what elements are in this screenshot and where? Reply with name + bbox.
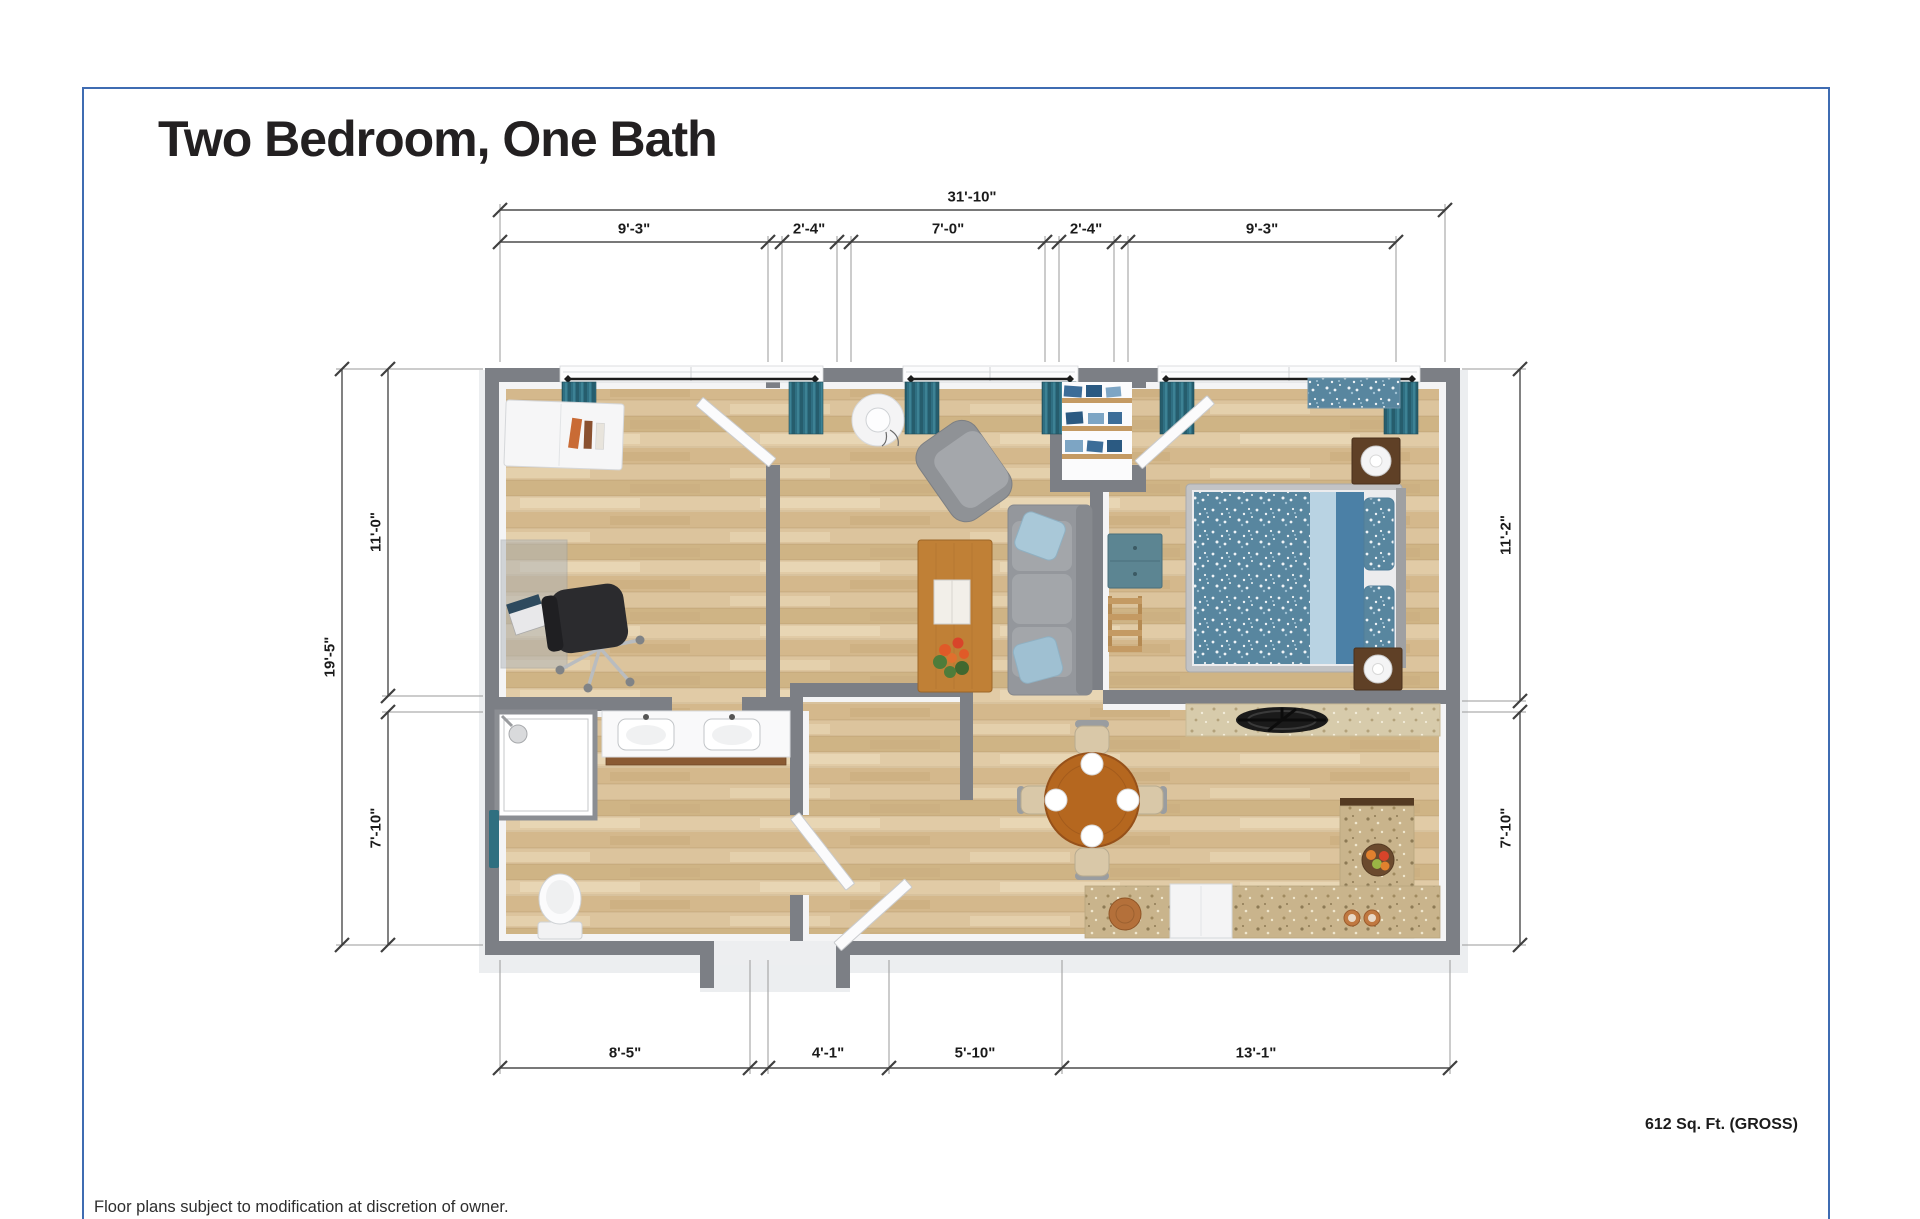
nightstand-top — [1352, 438, 1400, 484]
entry-floor — [714, 941, 836, 965]
dim-left-seg-1: 11'-0" — [368, 512, 385, 552]
toilet — [538, 874, 582, 939]
cabinet-edge — [1340, 798, 1414, 806]
dim-top-seg-2: 2'-4" — [793, 221, 825, 238]
nightstand-bottom — [1354, 648, 1402, 690]
coffee-table — [918, 540, 992, 692]
teal-dresser — [1108, 534, 1162, 588]
dim-top-seg-5: 9'-3" — [1246, 221, 1278, 238]
stool — [1109, 898, 1141, 930]
floor-plan-graphic — [0, 0, 1920, 1219]
sofa — [1008, 505, 1092, 695]
floor-plan-page: Two Bedroom, One Bath — [0, 0, 1920, 1219]
dim-top-seg-3: 7'-0" — [932, 221, 964, 238]
dim-top-total: 31'-10" — [947, 189, 996, 206]
dim-right-seg-2: 7'-10" — [1498, 808, 1515, 849]
dim-top-seg-4: 2'-4" — [1070, 221, 1102, 238]
shower — [497, 712, 595, 818]
fruit-bowl — [1362, 844, 1394, 876]
bed — [1186, 484, 1406, 672]
vanity — [602, 711, 790, 765]
dim-bottom-seg-1: 8'-5" — [609, 1045, 641, 1062]
dresser — [504, 400, 624, 470]
dim-top-seg-1: 9'-3" — [618, 221, 650, 238]
dim-left-total: 19'-5" — [322, 637, 339, 678]
plant-table — [852, 394, 904, 446]
gross-area-label: 612 Sq. Ft. (GROSS) — [1645, 1116, 1798, 1134]
wall-art — [1308, 378, 1400, 408]
dim-right-seg-1: 11'-2" — [1498, 515, 1515, 555]
dim-bottom-seg-2: 4'-1" — [812, 1045, 844, 1062]
cooktop — [1236, 707, 1328, 733]
dining-table — [1045, 753, 1139, 847]
dim-bottom-seg-4: 13'-1" — [1236, 1045, 1277, 1062]
towel — [489, 810, 499, 868]
disclaimer-text: Floor plans subject to modification at d… — [94, 1198, 509, 1217]
dim-left-seg-2: 7'-10" — [368, 808, 385, 849]
closet — [1062, 382, 1132, 480]
folded-clothes — [1064, 385, 1122, 453]
dim-bottom-seg-3: 5'-10" — [955, 1045, 996, 1062]
